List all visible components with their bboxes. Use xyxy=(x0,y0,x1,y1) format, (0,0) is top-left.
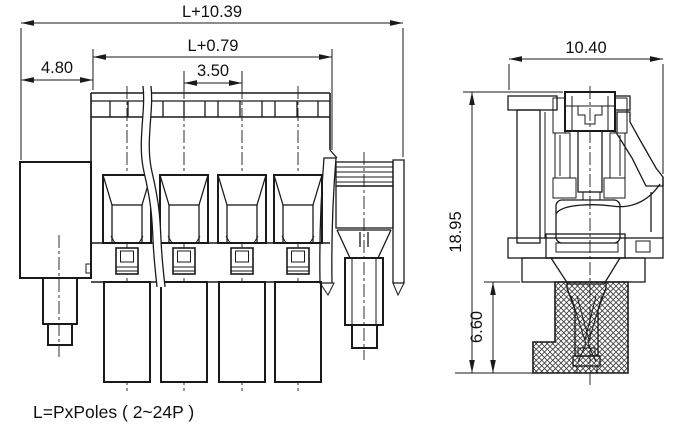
dim-overall-depth-label: 10.40 xyxy=(565,39,606,57)
pole-formula-note: L=PxPoles ( 2~24P ) xyxy=(33,402,194,422)
left-screw-tip xyxy=(48,324,72,345)
dim-overall-width-label: L+10.39 xyxy=(182,3,242,21)
left-screw-body xyxy=(43,278,77,324)
dim-overall-height-label: 18.95 xyxy=(447,211,465,252)
dim-pole-pitch-label: 3.50 xyxy=(197,62,229,80)
dim-lower-height-label: 6.60 xyxy=(468,311,486,343)
dim-flange-width-label: 4.80 xyxy=(41,59,73,77)
dim-housing-width-label: L+0.79 xyxy=(188,37,239,55)
technical-drawing-sheet: L+10.39 L+0.79 4.80 3.50 xyxy=(0,0,685,434)
terminal-block-drawing: L+10.39 L+0.79 4.80 3.50 xyxy=(0,0,685,434)
right-screw-tip xyxy=(352,325,377,348)
